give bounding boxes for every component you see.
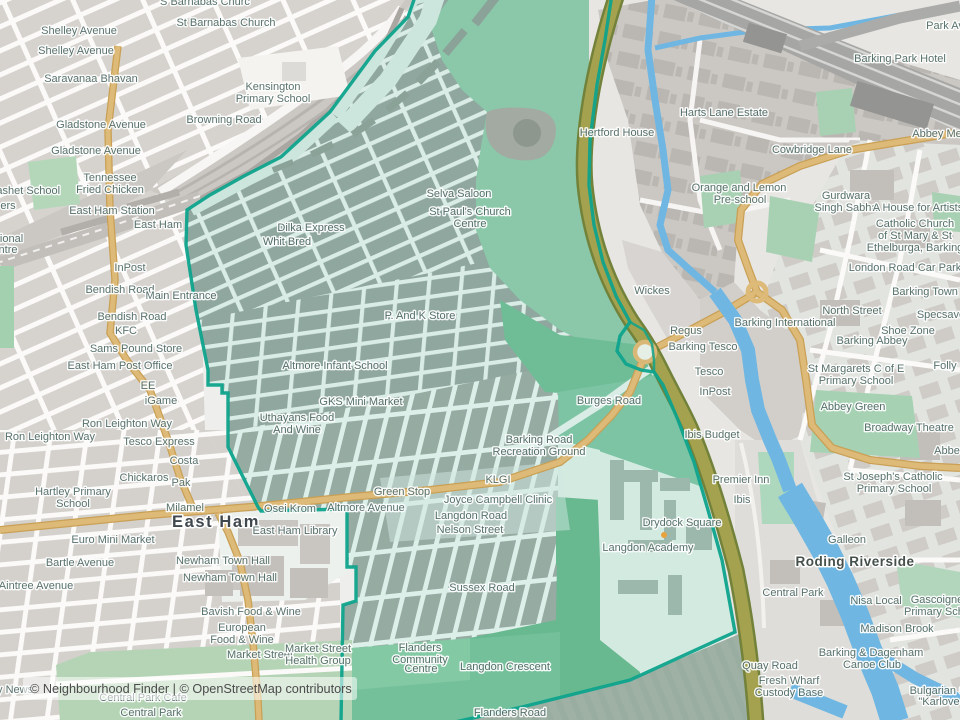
svg-text:Altmore Avenue: Altmore Avenue (327, 502, 404, 514)
svg-text:Tennessee: Tennessee (83, 172, 136, 184)
svg-text:Ethelburga, Barking: Ethelburga, Barking (867, 242, 960, 254)
svg-text:Bavish Food & Wine: Bavish Food & Wine (201, 606, 301, 618)
svg-text:Burges Road: Burges Road (577, 395, 641, 407)
svg-text:Regus: Regus (670, 325, 702, 337)
svg-text:ers: ers (0, 200, 16, 212)
svg-text:Market Street: Market Street (285, 643, 351, 655)
svg-text:Hartley Primary: Hartley Primary (35, 486, 111, 498)
svg-text:Ron Leighton Way: Ron Leighton Way (82, 418, 173, 430)
svg-text:St Paul's Church: St Paul's Church (429, 206, 511, 218)
svg-text:St Joseph's Catholic: St Joseph's Catholic (843, 471, 943, 483)
svg-text:Chickaros: Chickaros (120, 472, 169, 484)
svg-text:Central Park: Central Park (120, 707, 182, 719)
svg-text:Bendish Road: Bendish Road (97, 311, 166, 323)
svg-text:Flanders: Flanders (399, 642, 442, 654)
svg-text:Browning Road: Browning Road (186, 114, 261, 126)
svg-text:Gladstone Avenue: Gladstone Avenue (51, 145, 141, 157)
svg-text:Harts Lane Estate: Harts Lane Estate (680, 107, 768, 119)
svg-text:Folly: Folly (933, 360, 957, 372)
svg-text:lashet School: lashet School (0, 185, 60, 197)
svg-text:Flanders Road: Flanders Road (474, 707, 546, 719)
svg-text:Langdon Academy: Langdon Academy (602, 542, 694, 554)
svg-text:Fried Chicken: Fried Chicken (76, 184, 144, 196)
svg-text:Primary Scho: Primary Scho (904, 606, 960, 618)
svg-text:Selva Saloon: Selva Saloon (427, 188, 492, 200)
svg-text:Custody Base: Custody Base (755, 687, 823, 699)
svg-text:Catholic Church: Catholic Church (876, 218, 954, 230)
svg-text:Ron Leighton Way: Ron Leighton Way (5, 431, 96, 443)
svg-text:Newham Town Hall: Newham Town Hall (183, 572, 277, 584)
svg-text:Dilka Express: Dilka Express (277, 222, 345, 234)
svg-text:EE: EE (141, 380, 156, 392)
svg-text:Costa: Costa (170, 455, 200, 467)
svg-text:InPost: InPost (699, 386, 730, 398)
svg-text:KFC: KFC (115, 325, 137, 337)
svg-text:Newham Town Hall: Newham Town Hall (176, 555, 270, 567)
svg-text:© Neighbourhood Finder | © Ope: © Neighbourhood Finder | © OpenStreetMap… (30, 682, 352, 696)
svg-text:Barking Road: Barking Road (506, 434, 573, 446)
svg-text:Quay Road: Quay Road (742, 660, 798, 672)
svg-text:Uthayans Food: Uthayans Food (260, 412, 335, 424)
svg-text:Hertford House: Hertford House (580, 127, 655, 139)
svg-text:Central Park: Central Park (762, 587, 824, 599)
svg-text:East Ham Library: East Ham Library (253, 525, 338, 537)
svg-text:Barking Tesco: Barking Tesco (669, 341, 738, 353)
svg-text:Tesco: Tesco (695, 366, 724, 378)
svg-text:Langdon Road: Langdon Road (435, 510, 507, 522)
svg-text:Gladstone Avenue: Gladstone Avenue (56, 119, 146, 131)
svg-text:East Ham: East Ham (172, 513, 260, 531)
svg-text:Ibis: Ibis (733, 494, 751, 506)
svg-text:Park Av: Park Av (926, 20, 960, 32)
svg-text:East Ham Station: East Ham Station (69, 205, 155, 217)
svg-text:Centre: Centre (404, 663, 437, 675)
svg-text:Primary School: Primary School (819, 375, 894, 387)
svg-text:Food & Wine: Food & Wine (210, 634, 274, 646)
svg-text:Nisa Local: Nisa Local (850, 595, 901, 607)
svg-text:Barking Town: Barking Town (892, 286, 958, 298)
svg-text:Abbey Me: Abbey Me (912, 128, 960, 140)
svg-text:Altmore Infant School: Altmore Infant School (282, 360, 387, 372)
svg-text:GKS Mini Market: GKS Mini Market (319, 396, 402, 408)
svg-text:Abbey Green: Abbey Green (821, 401, 886, 413)
svg-text:Barking Abbey: Barking Abbey (837, 335, 908, 347)
svg-text:Bartle Avenue: Bartle Avenue (46, 557, 114, 569)
svg-text:Centre: Centre (453, 218, 486, 230)
svg-text:Broadway Theatre: Broadway Theatre (864, 422, 954, 434)
svg-text:Barking International: Barking International (735, 317, 836, 329)
svg-text:Joyce Campbell Clinic: Joyce Campbell Clinic (444, 494, 553, 506)
svg-text:Sussex Road: Sussex Road (449, 582, 514, 594)
svg-text:Madison Brook: Madison Brook (860, 623, 934, 635)
svg-text:Primary School: Primary School (236, 93, 311, 105)
svg-text:Pre-school: Pre-school (714, 194, 767, 206)
svg-text:Euro Mini Market: Euro Mini Market (71, 534, 154, 546)
svg-text:Primary School: Primary School (857, 483, 932, 495)
svg-text:Orange and Lemon: Orange and Lemon (692, 182, 787, 194)
svg-text:Osei Krom: Osei Krom (264, 503, 316, 515)
svg-text:St Barnabas Church: St Barnabas Church (176, 17, 275, 29)
svg-text:Sams Pound Store: Sams Pound Store (90, 343, 182, 355)
svg-text:St Margarets C of E: St Margarets C of E (808, 363, 905, 375)
svg-text:iGame: iGame (145, 395, 177, 407)
svg-text:East Ham Post Office: East Ham Post Office (68, 360, 173, 372)
svg-text:Whit Bred: Whit Bred (263, 236, 311, 248)
svg-text:Gascoigne: Gascoigne (911, 594, 960, 606)
svg-text:"Karlove: "Karlove (918, 696, 959, 708)
svg-text:Main Entrance: Main Entrance (146, 290, 217, 302)
svg-text:Langdon Crescent: Langdon Crescent (460, 661, 550, 673)
svg-text:Ibis Budget: Ibis Budget (684, 429, 739, 441)
svg-text:Kensington: Kensington (245, 81, 300, 93)
svg-text:Abbe: Abbe (934, 445, 960, 457)
svg-text:Aintree Avenue: Aintree Avenue (0, 580, 73, 592)
svg-text:Health Group: Health Group (285, 655, 350, 667)
svg-text:Wickes: Wickes (634, 285, 670, 297)
svg-text:Drydock Square: Drydock Square (643, 517, 722, 529)
svg-text:Tesco Express: Tesco Express (123, 436, 195, 448)
svg-text:ntre: ntre (0, 244, 17, 256)
svg-text:Shelley Avenue: Shelley Avenue (38, 45, 114, 57)
svg-text:Singh Sabha: Singh Sabha (815, 202, 879, 214)
svg-text:Bendish Road: Bendish Road (85, 284, 154, 296)
svg-text:Recreation Ground: Recreation Ground (493, 446, 586, 458)
svg-text:Canoe Club: Canoe Club (843, 659, 901, 671)
svg-text:Green Stop: Green Stop (374, 486, 430, 498)
svg-text:P. And K Store: P. And K Store (385, 310, 456, 322)
svg-text:East Ham: East Ham (134, 219, 182, 231)
svg-text:School: School (56, 498, 90, 510)
svg-text:Cowbridge Lane: Cowbridge Lane (772, 144, 852, 156)
svg-text:Gurdwara: Gurdwara (822, 190, 871, 202)
svg-text:S Barnabas Churc: S Barnabas Churc (160, 0, 250, 8)
svg-text:Market Street: Market Street (227, 649, 293, 661)
svg-text:European: European (218, 622, 266, 634)
svg-text:Galleon: Galleon (828, 534, 866, 546)
svg-text:Barking & Dagenham: Barking & Dagenham (819, 647, 924, 659)
svg-text:Roding Riverside: Roding Riverside (795, 554, 914, 569)
svg-text:North Street: North Street (822, 305, 881, 317)
svg-text:Shelley Avenue: Shelley Avenue (41, 25, 117, 37)
svg-text:Premier Inn: Premier Inn (713, 474, 770, 486)
svg-text:Nelson Street: Nelson Street (437, 524, 504, 536)
svg-text:KLGI: KLGI (485, 474, 510, 486)
svg-text:And Wine: And Wine (273, 424, 321, 436)
svg-text:Barking Park Hotel: Barking Park Hotel (854, 53, 946, 65)
svg-text:Fresh Wharf: Fresh Wharf (759, 675, 820, 687)
svg-text:Specsave: Specsave (917, 309, 960, 321)
svg-text:A House for Artists: A House for Artists (873, 202, 960, 214)
svg-text:London Road Car Park: London Road Car Park (849, 262, 960, 274)
svg-text:Pak: Pak (172, 477, 191, 489)
svg-text:Saravanaa Bhavan: Saravanaa Bhavan (44, 73, 138, 85)
svg-text:of St Mary & St: of St Mary & St (878, 230, 952, 242)
svg-text:InPost: InPost (114, 262, 145, 274)
